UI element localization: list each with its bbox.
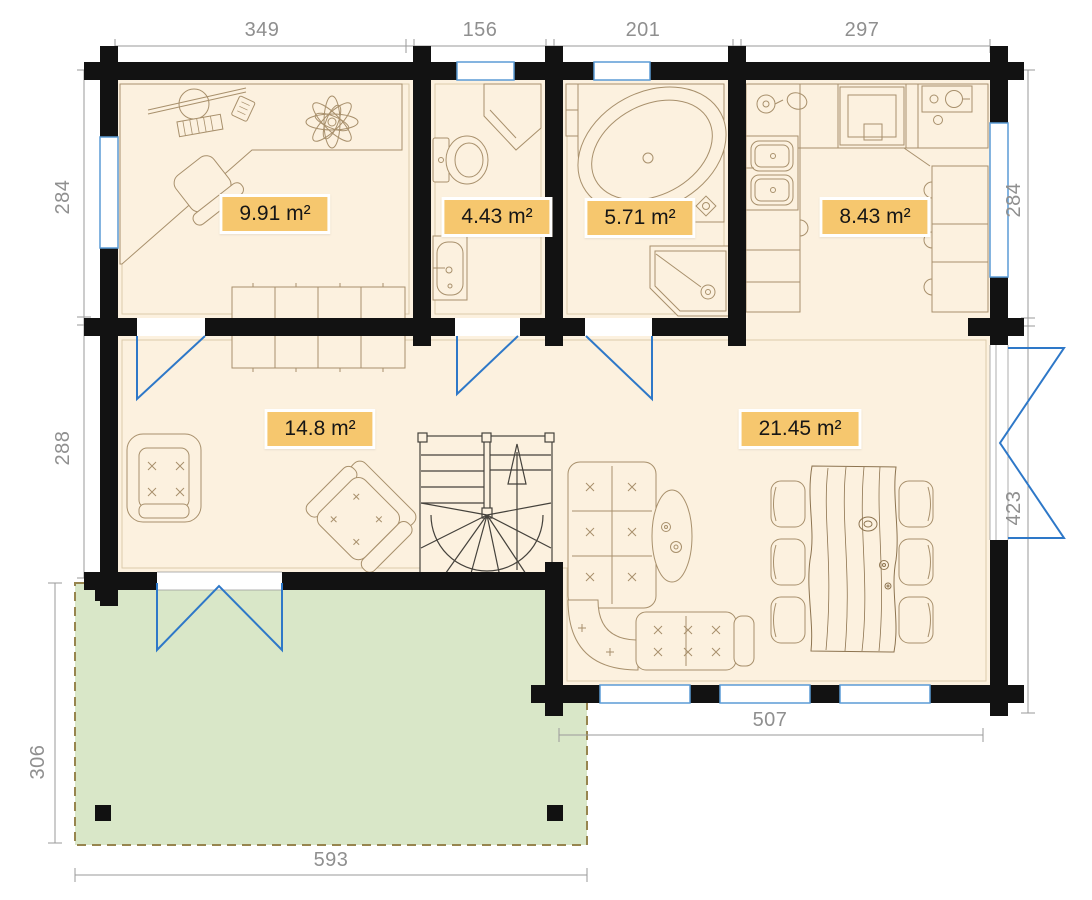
dining-chair <box>771 481 805 527</box>
staircase <box>418 433 554 578</box>
dim-left-288: 288 <box>53 431 73 466</box>
dining-chair <box>899 481 933 527</box>
coffee-table <box>652 490 692 582</box>
window-bathroom <box>594 62 650 80</box>
window-office <box>100 137 118 248</box>
dim-right-423: 423 <box>1004 491 1024 526</box>
dim-top-349: 349 <box>245 20 280 40</box>
dining-chair <box>771 597 805 643</box>
dining-chair <box>899 539 933 585</box>
dim-top-156: 156 <box>463 20 498 40</box>
dining-chair <box>899 597 933 643</box>
dim-terrace-306: 306 <box>28 745 48 780</box>
room-label-office: 9.91 m² <box>219 194 330 234</box>
washbasin <box>433 236 467 300</box>
terrace <box>75 583 587 845</box>
window-living-1 <box>600 685 690 703</box>
room-label-living: 21.45 m² <box>739 409 862 449</box>
room-label-bathroom: 5.71 m² <box>584 198 695 238</box>
floor-plan: 349 156 201 297 284 288 306 284 423 507 … <box>0 0 1092 900</box>
dim-top-201: 201 <box>626 20 661 40</box>
terrace-post <box>95 805 111 821</box>
dining-chair <box>771 539 805 585</box>
dim-right-284: 284 <box>1004 183 1024 218</box>
window-living-2 <box>720 685 810 703</box>
dim-top-297: 297 <box>845 20 880 40</box>
toilet <box>433 136 488 184</box>
dining-table <box>809 466 897 652</box>
kitchen-sink <box>738 136 798 210</box>
dim-left-284: 284 <box>53 180 73 215</box>
window-living-3 <box>840 685 930 703</box>
room-label-hall: 14.8 m² <box>264 409 375 449</box>
terrace-post <box>547 805 563 821</box>
armchair <box>127 434 201 522</box>
window-wc <box>457 62 514 80</box>
floorplan-canvas <box>0 0 1092 900</box>
dim-terrace-593: 593 <box>314 850 349 870</box>
stove <box>840 87 904 145</box>
room-label-wc: 4.43 m² <box>441 197 552 237</box>
room-label-kitchen: 8.43 m² <box>819 197 930 237</box>
dim-bottom-507: 507 <box>753 710 788 730</box>
